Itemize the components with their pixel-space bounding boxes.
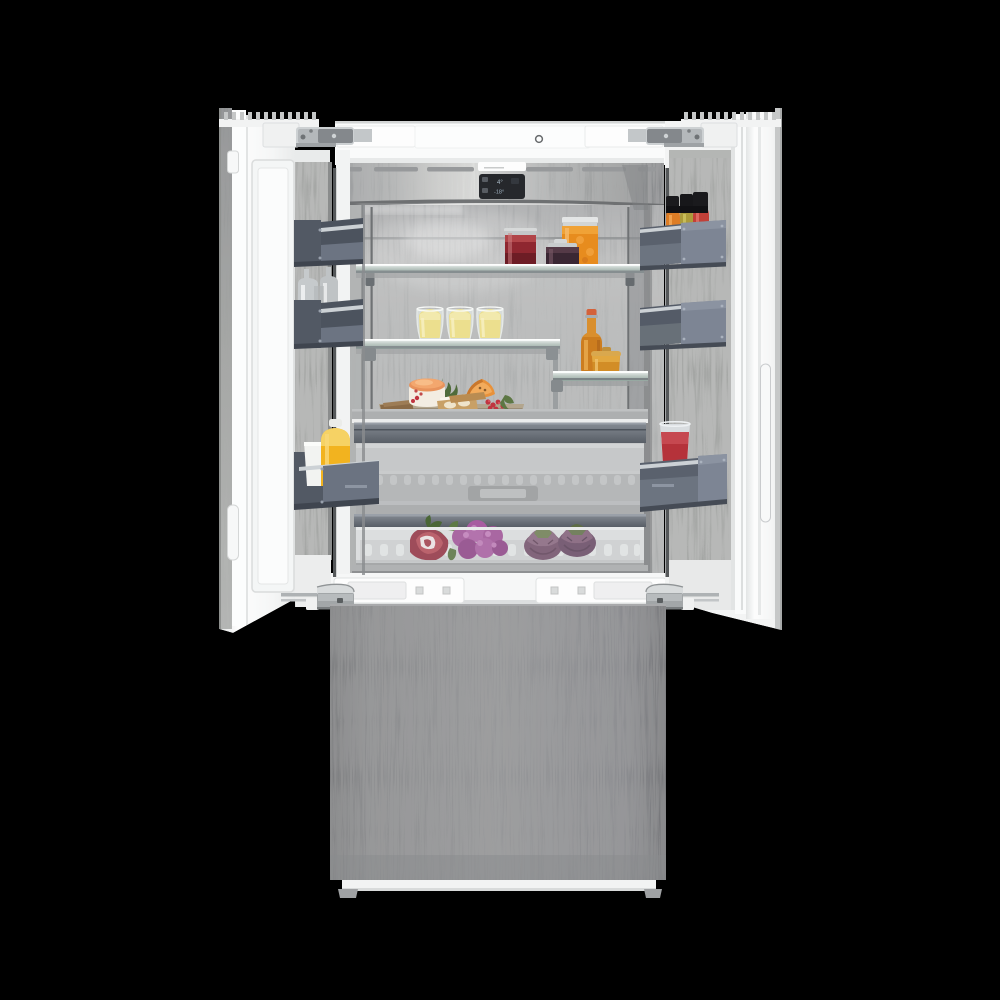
- svg-text:-18°: -18°: [494, 190, 504, 196]
- svg-text:4°: 4°: [497, 180, 503, 186]
